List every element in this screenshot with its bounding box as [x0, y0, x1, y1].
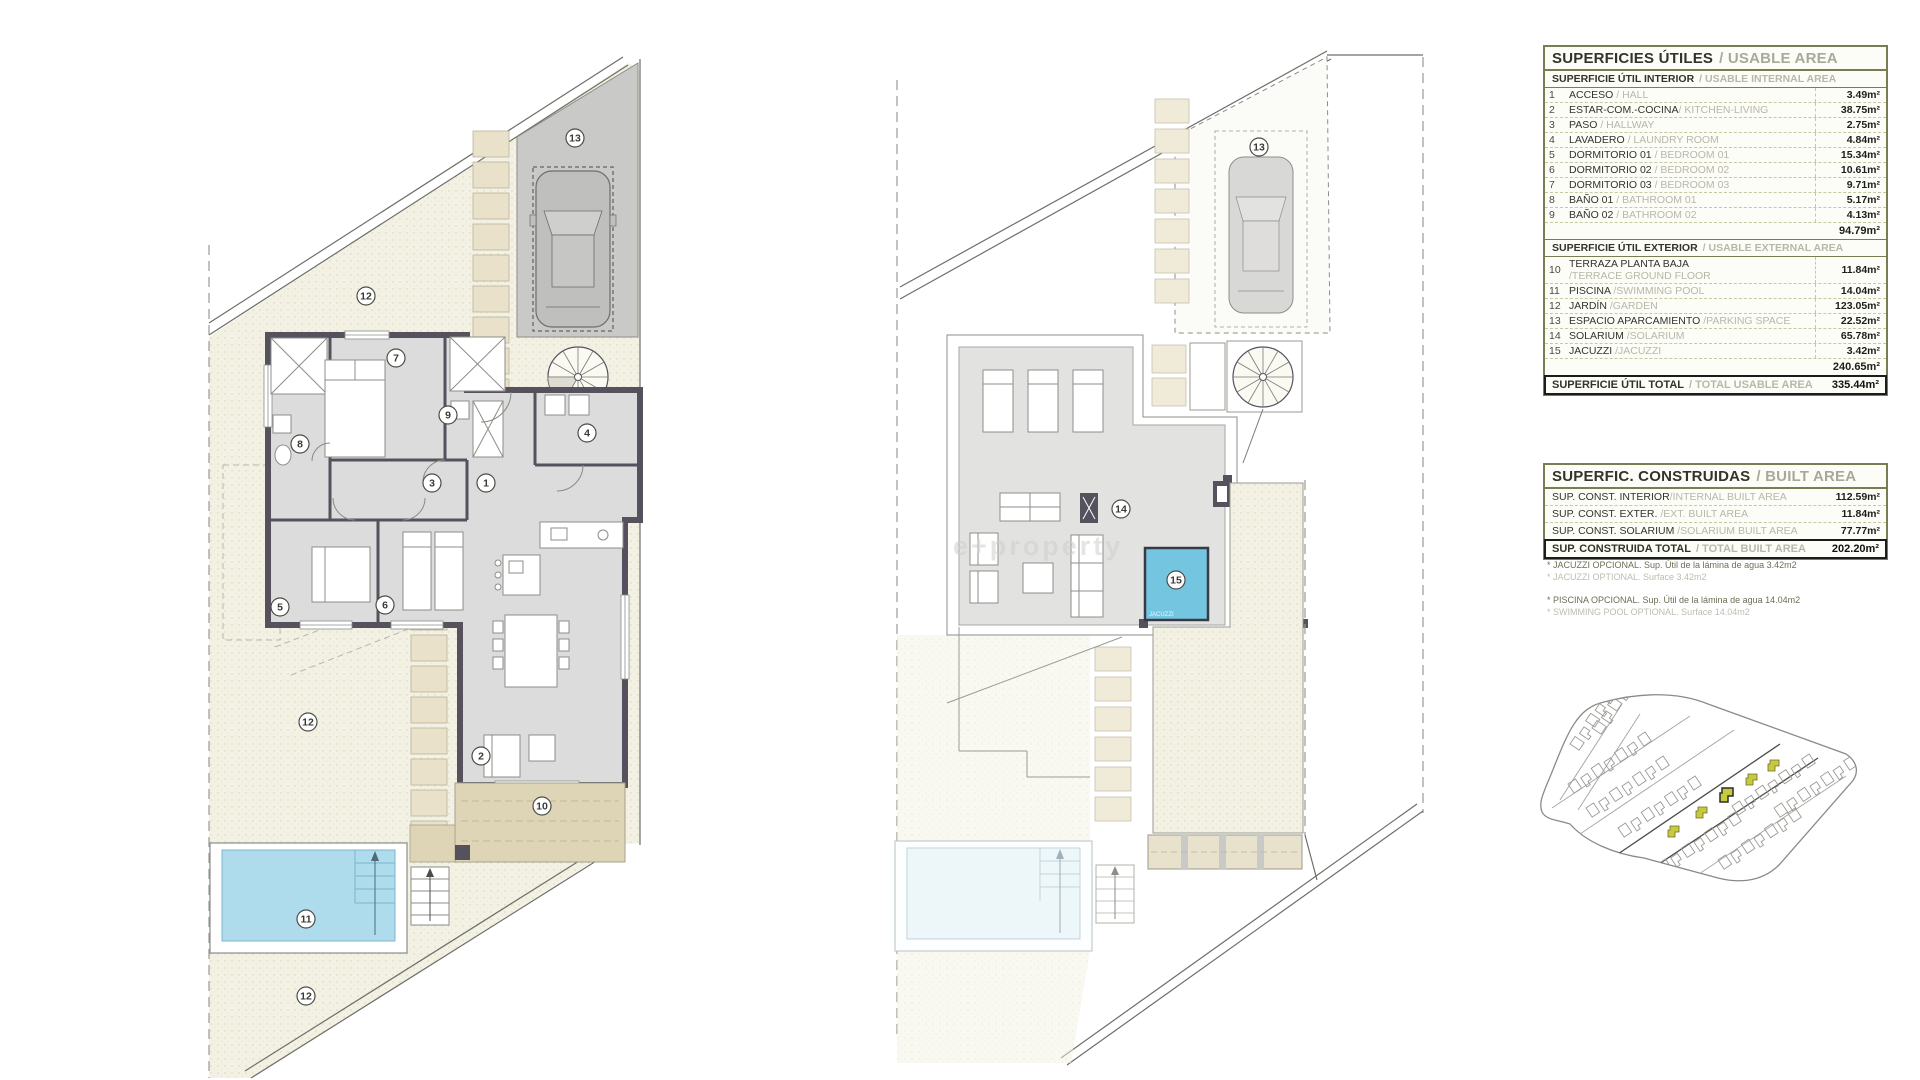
row-area: 77.77m²	[1814, 523, 1886, 539]
room-label: 12	[300, 991, 312, 1003]
row-number: 3	[1545, 118, 1567, 132]
interior-header-es: SUPERFICIE ÚTIL INTERIOR	[1552, 73, 1694, 85]
room-en: / BEDROOM 02	[1655, 164, 1730, 176]
table-row: 8BAÑO 01 / BATHROOM 015.17m²	[1545, 193, 1886, 208]
exterior-header-es: SUPERFICIE ÚTIL EXTERIOR	[1552, 242, 1698, 254]
table-row: 13ESPACIO APARCAMIENTO /PARKING SPACE22.…	[1545, 314, 1886, 329]
table-row: 9BAÑO 02 / BATHROOM 024.13m²	[1545, 208, 1886, 223]
footnote-es: * JACUZZI OPCIONAL. Sup. Útil de la lámi…	[1547, 560, 1877, 571]
row-area: 5.17m²	[1815, 193, 1886, 207]
exterior-header-en: / USABLE EXTERNAL AREA	[1703, 242, 1844, 254]
row-area: 2.75m²	[1815, 118, 1886, 132]
jacuzzi-text: JACUZZI	[1149, 612, 1174, 618]
row-number: 10	[1545, 263, 1567, 277]
room-label: 13	[1253, 142, 1265, 154]
room-es: LAVADERO	[1569, 134, 1625, 146]
table-row: 10TERRAZA PLANTA BAJA/TERRACE GROUND FLO…	[1545, 257, 1886, 284]
total-value: 202.20m²	[1832, 543, 1879, 555]
row-number: 1	[1545, 88, 1567, 102]
table-title-en: / USABLE AREA	[1719, 50, 1838, 67]
sun-loungers	[983, 370, 1103, 432]
row-area: 4.84m²	[1815, 133, 1886, 147]
table-row: 11PISCINA /SWIMMING POOL14.04m²	[1545, 284, 1886, 299]
total-value: 335.44m²	[1832, 379, 1879, 391]
row-number: 12	[1545, 299, 1567, 313]
stepping-stones-path	[1152, 99, 1189, 406]
row-area: 11.84m²	[1815, 257, 1886, 283]
room-en: / HALLWAY	[1600, 119, 1654, 131]
room-es: DORMITORIO 02	[1569, 164, 1652, 176]
table-row: 4LAVADERO / LAUNDRY ROOM4.84m²	[1545, 133, 1886, 148]
watermark: e+property	[953, 531, 1123, 561]
row-number: 6	[1545, 163, 1567, 177]
row-number: 4	[1545, 133, 1567, 147]
row-number: 14	[1545, 329, 1567, 343]
table-title-es: SUPERFIC. CONSTRUIDAS	[1552, 468, 1750, 485]
room-label: 15	[1170, 575, 1182, 587]
row-number: 9	[1545, 208, 1567, 222]
room-en: /PARKING SPACE	[1703, 315, 1790, 327]
room-es: BAÑO 02	[1569, 209, 1613, 221]
plan-sheet: 13 12 7 9 8 4 3 1 5 6 12 2 10 11 12	[0, 0, 1920, 1080]
row-number: 15	[1545, 344, 1567, 358]
table-row: SUP. CONST. EXTER. /EXT. BUILT AREA11.84…	[1545, 506, 1886, 523]
room-label: 8	[297, 439, 303, 451]
room-label: 13	[569, 133, 581, 145]
total-label-en: / TOTAL USABLE AREA	[1689, 379, 1813, 391]
row-area: 4.13m²	[1815, 208, 1886, 222]
table-title: SUPERFIC. CONSTRUIDAS / BUILT AREA	[1545, 465, 1886, 489]
exterior-stair	[411, 867, 449, 925]
room-en: / LAUNDRY ROOM	[1628, 134, 1719, 146]
room-en: / BEDROOM 01	[1655, 149, 1730, 161]
table-row: 6DORMITORIO 02 / BEDROOM 0210.61m²	[1545, 163, 1886, 178]
row-en: /INTERNAL BUILT AREA	[1670, 491, 1787, 503]
table-row: SUP. CONST. SOLARIUM /SOLARIUM BUILT ARE…	[1545, 523, 1886, 540]
car-icon	[530, 171, 616, 327]
table-row: 7DORMITORIO 03 / BEDROOM 039.71m²	[1545, 178, 1886, 193]
row-area: 14.04m²	[1815, 284, 1886, 298]
table-title: SUPERFICIES ÚTILES / USABLE AREA	[1545, 47, 1886, 71]
ground-floor-plan: 13 12 7 9 8 4 3 1 5 6 12 2 10 11 12	[195, 35, 655, 1080]
total-label-es: SUPERFICIE ÚTIL TOTAL	[1552, 379, 1684, 391]
row-area: 11.84m²	[1814, 506, 1886, 522]
row-area: 123.05m²	[1815, 299, 1886, 313]
room-en: / BATHROOM 01	[1616, 194, 1696, 206]
row-number: 13	[1545, 314, 1567, 328]
row-es: SUP. CONST. INTERIOR	[1552, 491, 1670, 503]
row-area: 65.78m²	[1815, 329, 1886, 343]
room-label: 4	[584, 428, 590, 440]
room-es: JARDÍN	[1569, 300, 1607, 312]
table-title-es: SUPERFICIES ÚTILES	[1552, 50, 1713, 67]
room-label: 14	[1115, 504, 1127, 516]
room-es: DORMITORIO 01	[1569, 149, 1652, 161]
parking-space	[517, 63, 638, 337]
built-total-row: SUP. CONSTRUIDA TOTAL/ TOTAL BUILT AREA …	[1544, 539, 1887, 559]
fire-pit	[1080, 493, 1098, 523]
room-es: SOLARIUM	[1569, 330, 1624, 342]
exterior-subtotal: 240.65m²	[1545, 359, 1886, 376]
room-es: PASO	[1569, 119, 1597, 131]
car-icon	[1229, 157, 1293, 313]
total-label-en: / TOTAL BUILT AREA	[1696, 543, 1806, 555]
room-en: / KITCHEN-LIVING	[1678, 104, 1768, 116]
room-en: / HALL	[1616, 89, 1648, 101]
table-row: 14SOLARIUM /SOLARIUM65.78m²	[1545, 329, 1886, 344]
room-label: 9	[445, 410, 451, 422]
parking-space	[1175, 57, 1330, 333]
room-label: 11	[300, 914, 311, 926]
row-area: 38.75m²	[1815, 103, 1886, 117]
row-number: 2	[1545, 103, 1567, 117]
room-label: 7	[393, 353, 399, 365]
stepping-stones-path	[1095, 647, 1131, 821]
room-en: /JACUZZI	[1615, 345, 1661, 357]
row-es: SUP. CONST. SOLARIUM	[1552, 525, 1674, 537]
table-row: SUP. CONST. INTERIOR/INTERNAL BUILT AREA…	[1545, 489, 1886, 506]
room-es: BAÑO 01	[1569, 194, 1613, 206]
footnote-en: * JACUZZI OPTIONAL. Surface 3.42m2	[1547, 572, 1877, 583]
table-title-en: / BUILT AREA	[1756, 468, 1856, 485]
swimming-pool	[210, 843, 407, 953]
table-row: 3PASO / HALLWAY2.75m²	[1545, 118, 1886, 133]
interior-subtotal: 94.79m²	[1545, 223, 1886, 240]
footnote-es: * PISCINA OPCIONAL. Sup. Útil de la lámi…	[1547, 595, 1877, 606]
row-number: 5	[1545, 148, 1567, 162]
room-en: / BEDROOM 03	[1655, 179, 1730, 191]
interior-header: SUPERFICIE ÚTIL INTERIOR / USABLE INTERN…	[1545, 71, 1886, 88]
row-en: /SOLARIUM BUILT AREA	[1677, 525, 1797, 537]
row-number: 11	[1545, 284, 1567, 298]
room-es: ESPACIO APARCAMIENTO	[1569, 315, 1700, 327]
footnotes: * JACUZZI OPCIONAL. Sup. Útil de la lámi…	[1547, 560, 1877, 629]
room-label: 12	[302, 717, 314, 729]
row-area: 22.52m²	[1815, 314, 1886, 328]
row-area: 3.49m²	[1815, 88, 1886, 102]
row-area: 15.34m²	[1815, 148, 1886, 162]
total-label-es: SUP. CONSTRUIDA TOTAL	[1552, 543, 1691, 555]
room-en: /GARDEN	[1610, 300, 1658, 312]
table-row: 2ESTAR-COM.-COCINA/ KITCHEN-LIVING38.75m…	[1545, 103, 1886, 118]
room-label: 1	[483, 478, 489, 490]
exterior-header: SUPERFICIE ÚTIL EXTERIOR / USABLE EXTERN…	[1545, 240, 1886, 257]
interior-header-en: / USABLE INTERNAL AREA	[1699, 73, 1836, 85]
site-key-map	[1522, 688, 1882, 893]
table-row: 12JARDÍN /GARDEN123.05m²	[1545, 299, 1886, 314]
table-row: 1ACCESO / HALL3.49m²	[1545, 88, 1886, 103]
room-es: DORMITORIO 03	[1569, 179, 1652, 191]
room-en: /SOLARIUM	[1627, 330, 1685, 342]
row-es: SUP. CONST. EXTER.	[1552, 508, 1657, 520]
room-es: JACUZZI	[1569, 345, 1612, 357]
row-area: 3.42m²	[1815, 344, 1886, 358]
pergola-terrace	[1148, 835, 1302, 869]
room-en: / BATHROOM 02	[1616, 209, 1696, 221]
room-label: 5	[277, 602, 283, 614]
solarium-plan: JACUZZI	[875, 35, 1445, 1070]
usable-area-table: SUPERFICIES ÚTILES / USABLE AREA SUPERFI…	[1543, 45, 1888, 396]
table-row: 15JACUZZI /JACUZZI3.42m²	[1545, 344, 1886, 359]
room-en: /TERRACE GROUND FLOOR	[1569, 270, 1813, 282]
table-row: 5DORMITORIO 01 / BEDROOM 0115.34m²	[1545, 148, 1886, 163]
room-es: TERRAZA PLANTA BAJA	[1569, 258, 1813, 270]
row-area: 112.59m²	[1814, 489, 1886, 505]
room-es: ESTAR-COM.-COCINA	[1569, 104, 1678, 116]
row-area: 9.71m²	[1815, 178, 1886, 192]
row-area: 10.61m²	[1815, 163, 1886, 177]
built-area-table: SUPERFIC. CONSTRUIDAS / BUILT AREA SUP. …	[1543, 463, 1888, 560]
room-label: 3	[429, 478, 435, 490]
row-en: /EXT. BUILT AREA	[1660, 508, 1748, 520]
exterior-stair	[1096, 865, 1134, 923]
room-label: 10	[536, 801, 548, 813]
pool-outline	[895, 841, 1092, 951]
room-es: PISCINA	[1569, 285, 1610, 297]
footnote-en: * SWIMMING POOL OPTIONAL. Surface 14.04m…	[1547, 607, 1877, 618]
row-number: 7	[1545, 178, 1567, 192]
row-number: 8	[1545, 193, 1567, 207]
room-en: /SWIMMING POOL	[1613, 285, 1704, 297]
usable-total-row: SUPERFICIE ÚTIL TOTAL/ TOTAL USABLE AREA…	[1544, 375, 1887, 395]
room-label: 12	[360, 291, 372, 303]
room-label: 6	[382, 600, 388, 612]
room-label: 2	[478, 751, 484, 763]
room-es: ACCESO	[1569, 89, 1613, 101]
